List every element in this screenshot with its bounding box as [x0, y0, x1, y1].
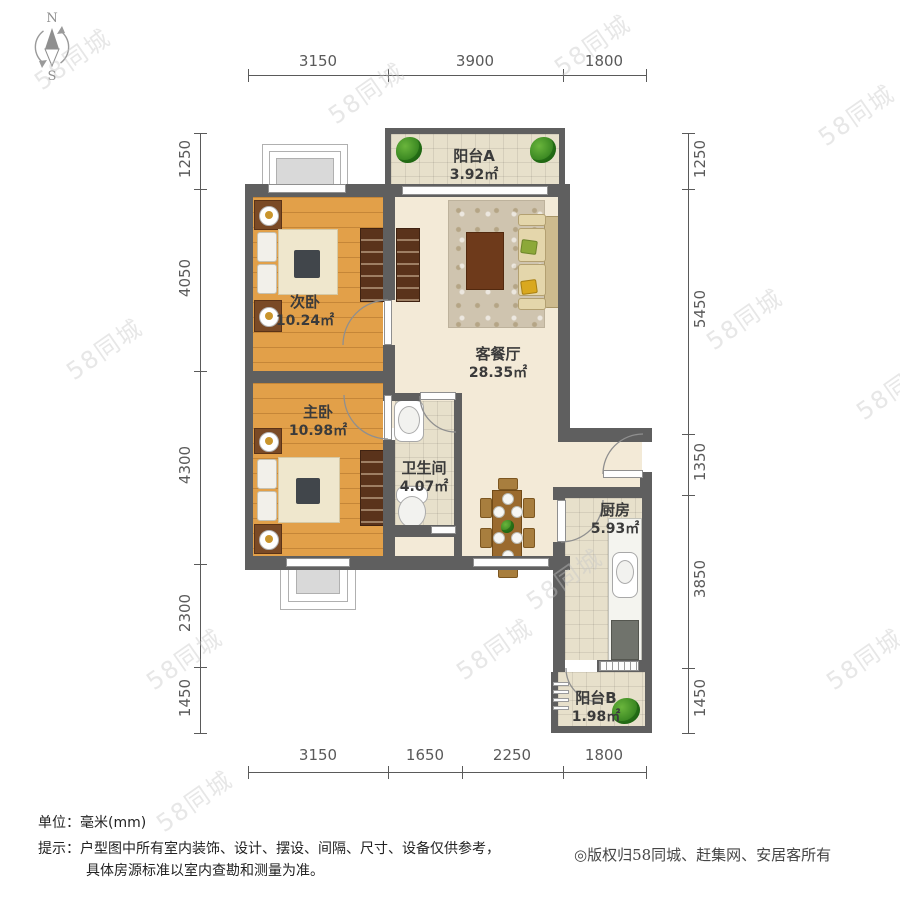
- bay-window-master-bedroom-sill: [296, 566, 340, 594]
- dining-chair: [498, 478, 518, 490]
- lamp-dot: [265, 211, 273, 219]
- wall-segment: [558, 190, 570, 430]
- bed-pillow: [257, 459, 277, 489]
- dimension-value: 3900: [443, 52, 507, 70]
- floor-niche: [395, 537, 454, 556]
- compass-south-label: S: [48, 69, 57, 84]
- bed-pillow: [257, 491, 277, 521]
- dimension-value: 4050: [176, 246, 194, 310]
- room-area: 1.98㎡: [536, 708, 656, 727]
- compass-needle-south: [45, 49, 59, 66]
- dimension-value: 1350: [691, 430, 709, 494]
- dimension-tick: [194, 733, 207, 734]
- dining-chair: [523, 528, 535, 548]
- dimension-tick: [563, 69, 564, 82]
- dimension-tick: [194, 667, 207, 668]
- wall-segment: [553, 487, 652, 498]
- dimension-value: 1800: [572, 746, 636, 764]
- bathroom-sink-basin: [398, 406, 420, 434]
- door-leaf-second-bedroom: [384, 300, 392, 345]
- wall-segment: [385, 128, 391, 186]
- toilet-bowl: [398, 496, 426, 528]
- room-name: 次卧: [245, 292, 365, 312]
- dimension-line-bottom: [248, 772, 646, 773]
- tip-line-2: 具体房源标准以室内查勘和测量为准。: [86, 860, 324, 880]
- dimension-line-right: [688, 133, 689, 733]
- room-label-kitchen: 厨房 5.93㎡: [555, 500, 675, 539]
- room-label-living-dining: 客餐厅 28.35㎡: [438, 344, 558, 383]
- plate: [493, 506, 505, 518]
- bed-pillow: [257, 232, 277, 262]
- room-area: 4.07㎡: [364, 478, 484, 497]
- dimension-tick: [388, 766, 389, 779]
- bay-window-second-bedroom-sill: [276, 158, 334, 186]
- dining-chair: [523, 498, 535, 518]
- watermark: 58同城: [448, 608, 539, 686]
- dimension-value: 2250: [480, 746, 544, 764]
- wall-segment: [558, 428, 652, 442]
- dimension-tick: [248, 766, 249, 779]
- room-name: 厨房: [555, 500, 675, 520]
- room-label-balcony-a: 阳台A 3.92㎡: [414, 146, 534, 185]
- floor-entry: [558, 442, 642, 488]
- sofa-armrest: [518, 298, 546, 310]
- dimension-tick: [248, 69, 249, 82]
- dimension-tick: [388, 69, 389, 82]
- window-corridor: [473, 558, 549, 567]
- bed-runner: [294, 250, 320, 278]
- dimension-value: 3150: [286, 746, 350, 764]
- room-label-master-bedroom: 主卧 10.98㎡: [258, 402, 378, 441]
- wall-segment: [383, 193, 395, 300]
- compass-ring-right: [61, 31, 69, 63]
- dimension-tick: [194, 189, 207, 190]
- sofa-pillow-green: [520, 239, 538, 255]
- plate: [511, 506, 523, 518]
- room-area: 10.98㎡: [258, 422, 378, 441]
- window-master-bedroom-bay: [286, 558, 350, 567]
- watermark: 58同城: [810, 74, 900, 152]
- room-area: 10.24㎡: [245, 312, 365, 331]
- room-area: 3.92㎡: [414, 166, 534, 185]
- dimension-line-left: [200, 133, 201, 733]
- dimension-tick: [462, 766, 463, 779]
- balcony-b-railing: [553, 682, 569, 686]
- door-leaf-master-bedroom: [384, 395, 392, 440]
- wall-lamp-icon: [259, 530, 279, 550]
- dimension-value: 1800: [572, 52, 636, 70]
- room-label-second-bedroom: 次卧 10.24㎡: [245, 292, 365, 331]
- compass-north-label: N: [46, 11, 57, 26]
- room-name: 阳台B: [536, 688, 656, 708]
- coffee-table: [466, 232, 504, 290]
- door-leaf-bathroom: [420, 392, 456, 400]
- dimension-value: 1250: [176, 127, 194, 191]
- watermark: 58同城: [818, 618, 900, 696]
- wall-segment: [245, 371, 395, 383]
- compass-ring-left: [35, 31, 43, 63]
- dimension-tick: [682, 733, 695, 734]
- dimension-line-top: [248, 75, 646, 76]
- dimension-value: 1650: [393, 746, 457, 764]
- dimension-tick: [646, 69, 647, 82]
- plate: [502, 493, 514, 505]
- dimension-tick: [563, 766, 564, 779]
- copyright-note: ◎版权归58同城、赶集网、安居客所有: [574, 844, 831, 865]
- dimension-value: 3850: [691, 547, 709, 611]
- unit-note: 单位：毫米(mm): [38, 812, 146, 832]
- floorplan-page: N S 3150 3900 1800 3150 1650 2250 1800 1…: [0, 0, 900, 900]
- room-area: 5.93㎡: [555, 520, 675, 539]
- sofa-armrest: [518, 214, 546, 226]
- door-leaf-entry: [603, 470, 643, 478]
- compass-arrow-left: [39, 60, 47, 68]
- watermark: 58同城: [848, 348, 900, 426]
- wall-segment: [383, 345, 395, 395]
- tip-line-1: 提示：户型图中所有室内装饰、设计、摆设、间隔、尺寸、设备仅供参考，: [38, 838, 500, 858]
- dining-chair: [480, 498, 492, 518]
- wall-segment: [553, 660, 565, 672]
- watermark: 58同城: [698, 278, 789, 356]
- dimension-value: 5450: [691, 277, 709, 341]
- compass-needle-north: [45, 28, 59, 49]
- window-bathroom: [431, 526, 456, 534]
- dimension-value: 3150: [286, 52, 350, 70]
- window-balcony-a: [402, 186, 548, 195]
- wall-segment: [559, 128, 565, 186]
- plate: [493, 532, 505, 544]
- dimension-value: 1450: [691, 666, 709, 730]
- room-label-bathroom: 卫生间 4.07㎡: [364, 458, 484, 497]
- living-cabinet: [396, 228, 420, 302]
- watermark: 58同城: [148, 760, 239, 838]
- kitchen-sink-basin: [616, 560, 634, 584]
- room-name: 客餐厅: [438, 344, 558, 364]
- bed-pillow: [257, 264, 277, 294]
- dimension-value: 1250: [691, 127, 709, 191]
- watermark: 58同城: [58, 308, 149, 386]
- room-name: 主卧: [258, 402, 378, 422]
- window-second-bedroom-bay: [268, 184, 346, 193]
- dimension-value: 4300: [176, 433, 194, 497]
- compass-arrow-right: [57, 26, 65, 34]
- dimension-tick: [194, 564, 207, 565]
- room-label-balcony-b: 阳台B 1.98㎡: [536, 688, 656, 727]
- room-name: 卫生间: [364, 458, 484, 478]
- dimension-tick: [646, 766, 647, 779]
- room-name: 阳台A: [414, 146, 534, 166]
- dimension-tick: [194, 133, 207, 134]
- compass: N S: [16, 6, 88, 84]
- wardrobe: [360, 228, 384, 302]
- wall-segment: [553, 487, 565, 500]
- wall-segment: [385, 128, 565, 134]
- dimension-tick: [682, 495, 695, 496]
- dimension-value: 2300: [176, 581, 194, 645]
- wall-lamp-icon: [259, 206, 279, 226]
- dimension-value: 1450: [176, 666, 194, 730]
- watermark: 58同城: [546, 4, 637, 82]
- window-kitchen-balcony-b: [599, 661, 639, 671]
- plate: [511, 532, 523, 544]
- dimension-tick: [194, 371, 207, 372]
- lamp-dot: [265, 535, 273, 543]
- bed-runner: [296, 478, 320, 504]
- dining-chair: [480, 528, 492, 548]
- stove: [611, 620, 639, 660]
- room-area: 28.35㎡: [438, 364, 558, 383]
- wall-segment: [553, 542, 565, 672]
- sofa-pillow-yellow: [520, 279, 538, 295]
